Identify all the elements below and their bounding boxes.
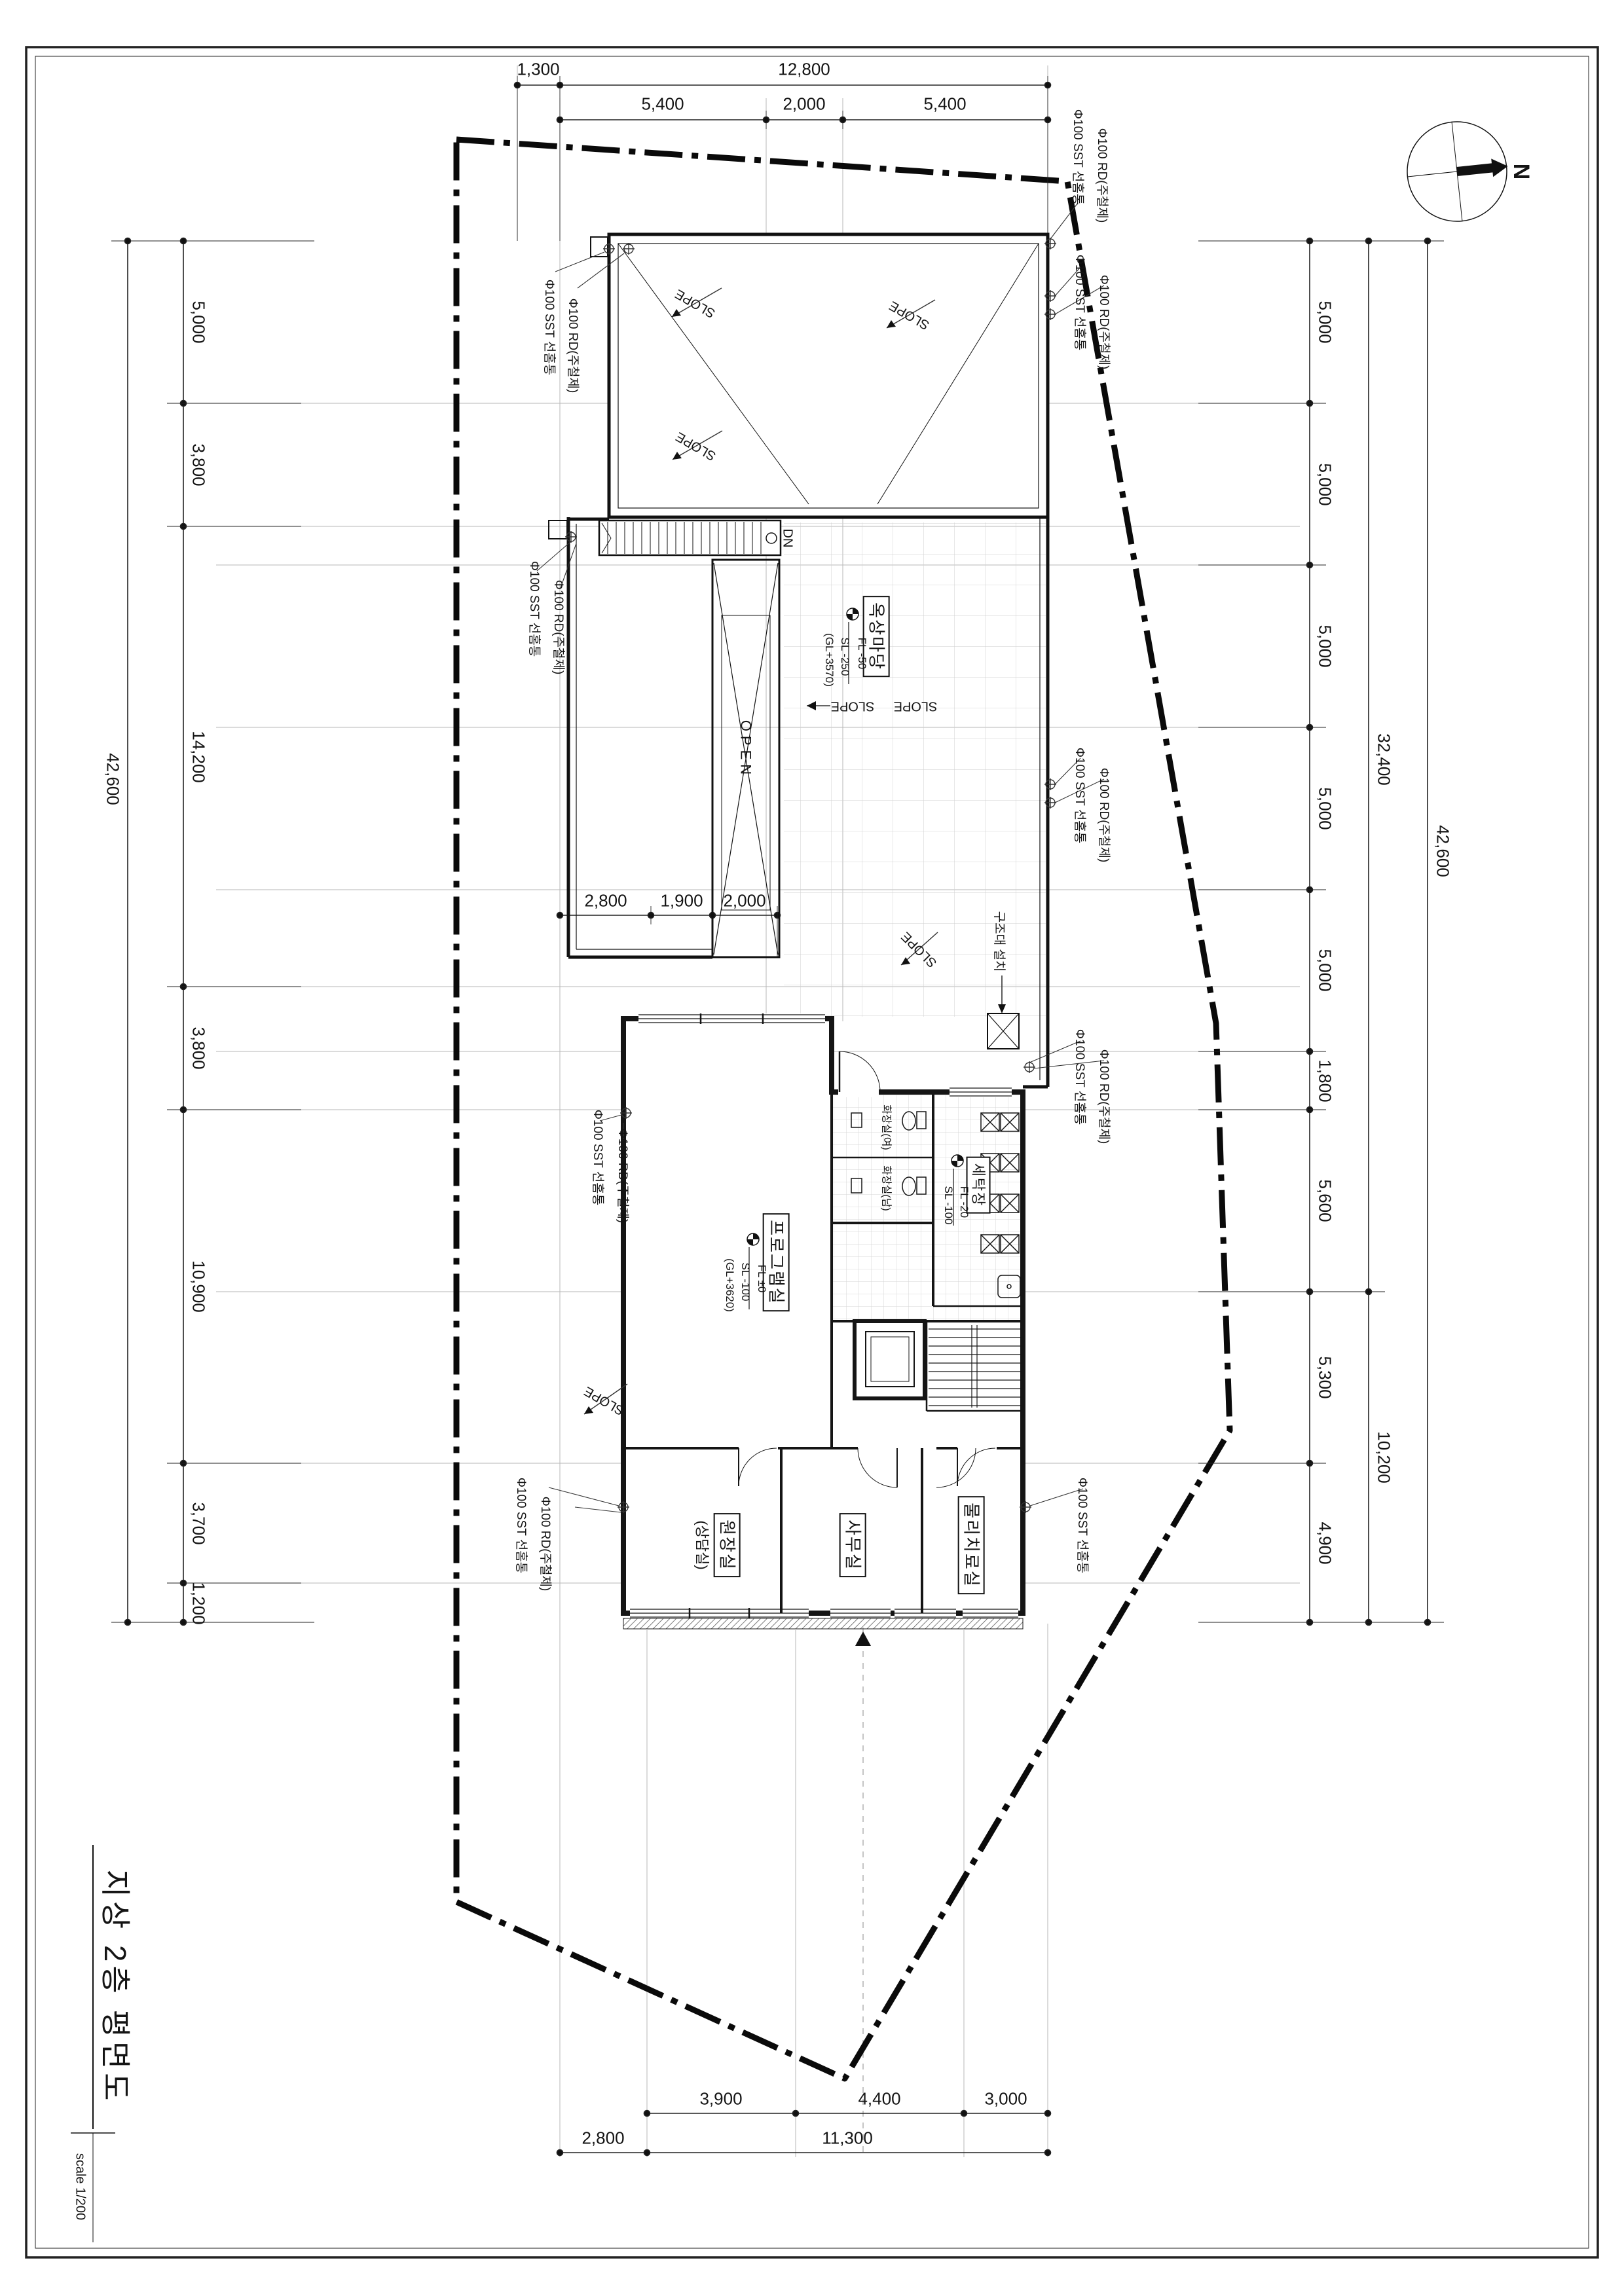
room-toilet-women: 화장실(여) bbox=[880, 1104, 891, 1150]
dim-top-sub-5400a: 5,400 bbox=[641, 95, 684, 113]
drawing-sheet: 1,300 12,800 5,400 2,000 5,400 5,000 3,8… bbox=[0, 0, 1624, 2296]
level-laundry-fl: FL -20 bbox=[958, 1186, 970, 1218]
dim-bottom-4400: 4,400 bbox=[858, 2090, 900, 2107]
ann-sst-6: Φ100 SST 선홈통 bbox=[1073, 1029, 1086, 1125]
dim-left-5: 3,700 bbox=[189, 1502, 207, 1544]
ann-sst-4: Φ100 SST 선홈통 bbox=[527, 561, 540, 657]
dim-right-4: 5,000 bbox=[1316, 949, 1333, 991]
ann-rd-3: Φ100 RD(주철제) bbox=[1097, 275, 1110, 370]
dim-right-10200: 10,200 bbox=[1375, 1431, 1392, 1484]
ann-rd-7: Φ100 RD(주철제) bbox=[616, 1129, 629, 1224]
dim-right-6: 5,600 bbox=[1316, 1179, 1333, 1222]
dim-right-8: 4,900 bbox=[1316, 1522, 1333, 1564]
ann-rescue-chute: 구조대 설치 bbox=[992, 911, 1005, 972]
dim-top-1300: 1,300 bbox=[517, 60, 559, 78]
dim-right-1: 5,000 bbox=[1316, 463, 1333, 505]
level-program-sl: SL -100 bbox=[739, 1263, 751, 1302]
dim-bottom-3900: 3,900 bbox=[699, 2090, 742, 2107]
dim-left-6: 1,200 bbox=[189, 1582, 207, 1624]
dim-right-total: 42,600 bbox=[1433, 825, 1451, 877]
entrance-arrow bbox=[855, 1631, 871, 1646]
dim-left-3: 3,800 bbox=[189, 1027, 207, 1069]
dim-top-12800: 12,800 bbox=[778, 60, 830, 78]
dim-roof-2000: 2,000 bbox=[723, 892, 766, 909]
dim-right-5: 1,800 bbox=[1316, 1059, 1333, 1102]
level-program-gl: (GL+3620) bbox=[724, 1258, 735, 1312]
ann-sst-2: Φ100 SST 선홈통 bbox=[1071, 109, 1084, 205]
ann-rd-4: Φ100 RD(주철제) bbox=[551, 580, 564, 675]
label-open: OPEN bbox=[738, 720, 753, 779]
floor-plan-linework bbox=[0, 0, 1624, 2296]
level-program-fl: FL ±0 bbox=[756, 1265, 767, 1293]
label-dn: DN bbox=[781, 529, 794, 548]
ann-rd-8: Φ100 RD(주철제) bbox=[538, 1497, 551, 1592]
dim-top-sub-5400b: 5,400 bbox=[923, 95, 966, 113]
ann-rd-1: Φ100 RD(주철제) bbox=[566, 299, 579, 393]
page-title: 지상 2층 평면도 bbox=[100, 1869, 131, 2104]
ann-rd-5: Φ100 RD(주철제) bbox=[1097, 768, 1110, 863]
dim-left-0: 5,000 bbox=[189, 301, 207, 343]
north-letter: N bbox=[1509, 164, 1532, 180]
dim-left-2: 14,200 bbox=[189, 731, 207, 783]
dim-bottom-11300: 11,300 bbox=[822, 2129, 873, 2147]
ann-rd-6: Φ100 RD(주철제) bbox=[1097, 1049, 1110, 1144]
level-roof-sl: SL -250 bbox=[839, 638, 851, 676]
room-therapy: 물리치료실 bbox=[957, 1496, 984, 1594]
room-office: 사무실 bbox=[839, 1513, 866, 1577]
ann-sst-3: Φ100 SST 선홈통 bbox=[1073, 255, 1086, 350]
ann-sst-8: Φ100 SST 선홈통 bbox=[514, 1478, 527, 1573]
dim-roof-2800: 2,800 bbox=[584, 892, 627, 909]
level-laundry-sl: SL -100 bbox=[942, 1186, 954, 1225]
ann-sst-7: Φ100 SST 선홈통 bbox=[591, 1110, 604, 1205]
dim-right-32400: 32,400 bbox=[1375, 733, 1392, 786]
north-arrow bbox=[1402, 117, 1513, 226]
room-director-sub: (상담실) bbox=[694, 1520, 709, 1569]
dim-bottom-3000: 3,000 bbox=[984, 2090, 1027, 2107]
dim-left-1: 3,800 bbox=[189, 443, 207, 486]
page-scale: scale 1/200 bbox=[73, 2153, 87, 2220]
dim-right-3: 5,000 bbox=[1316, 787, 1333, 829]
level-roof-gl: (GL+3570) bbox=[823, 633, 835, 687]
dim-bottom-2800: 2,800 bbox=[581, 2129, 624, 2147]
room-program: 프로그램실 bbox=[762, 1213, 789, 1311]
dim-right-0: 5,000 bbox=[1316, 301, 1333, 343]
label-slope-5: SLOPE bbox=[894, 699, 938, 713]
room-toilet-men: 화장실(남) bbox=[880, 1165, 891, 1211]
dim-right-2: 5,000 bbox=[1316, 625, 1333, 667]
dim-left-4: 10,900 bbox=[189, 1260, 207, 1313]
ann-sst-9: Φ100 SST 선홈통 bbox=[1075, 1478, 1088, 1573]
label-slope-4: SLOPE bbox=[831, 699, 875, 713]
ann-sst-5: Φ100 SST 선홈통 bbox=[1073, 748, 1086, 843]
dim-right-7: 5,300 bbox=[1316, 1356, 1333, 1398]
ann-sst-1: Φ100 SST 선홈통 bbox=[542, 280, 555, 375]
dim-roof-1900: 1,900 bbox=[660, 892, 703, 909]
room-director: 원장실 bbox=[713, 1513, 740, 1577]
dim-left-total: 42,600 bbox=[103, 753, 121, 805]
roof-outline bbox=[549, 234, 1048, 1087]
level-roof-fl: FL -50 bbox=[856, 638, 868, 670]
ann-rd-2: Φ100 RD(주철제) bbox=[1095, 128, 1108, 223]
dim-top-sub-2000: 2,000 bbox=[783, 95, 825, 113]
